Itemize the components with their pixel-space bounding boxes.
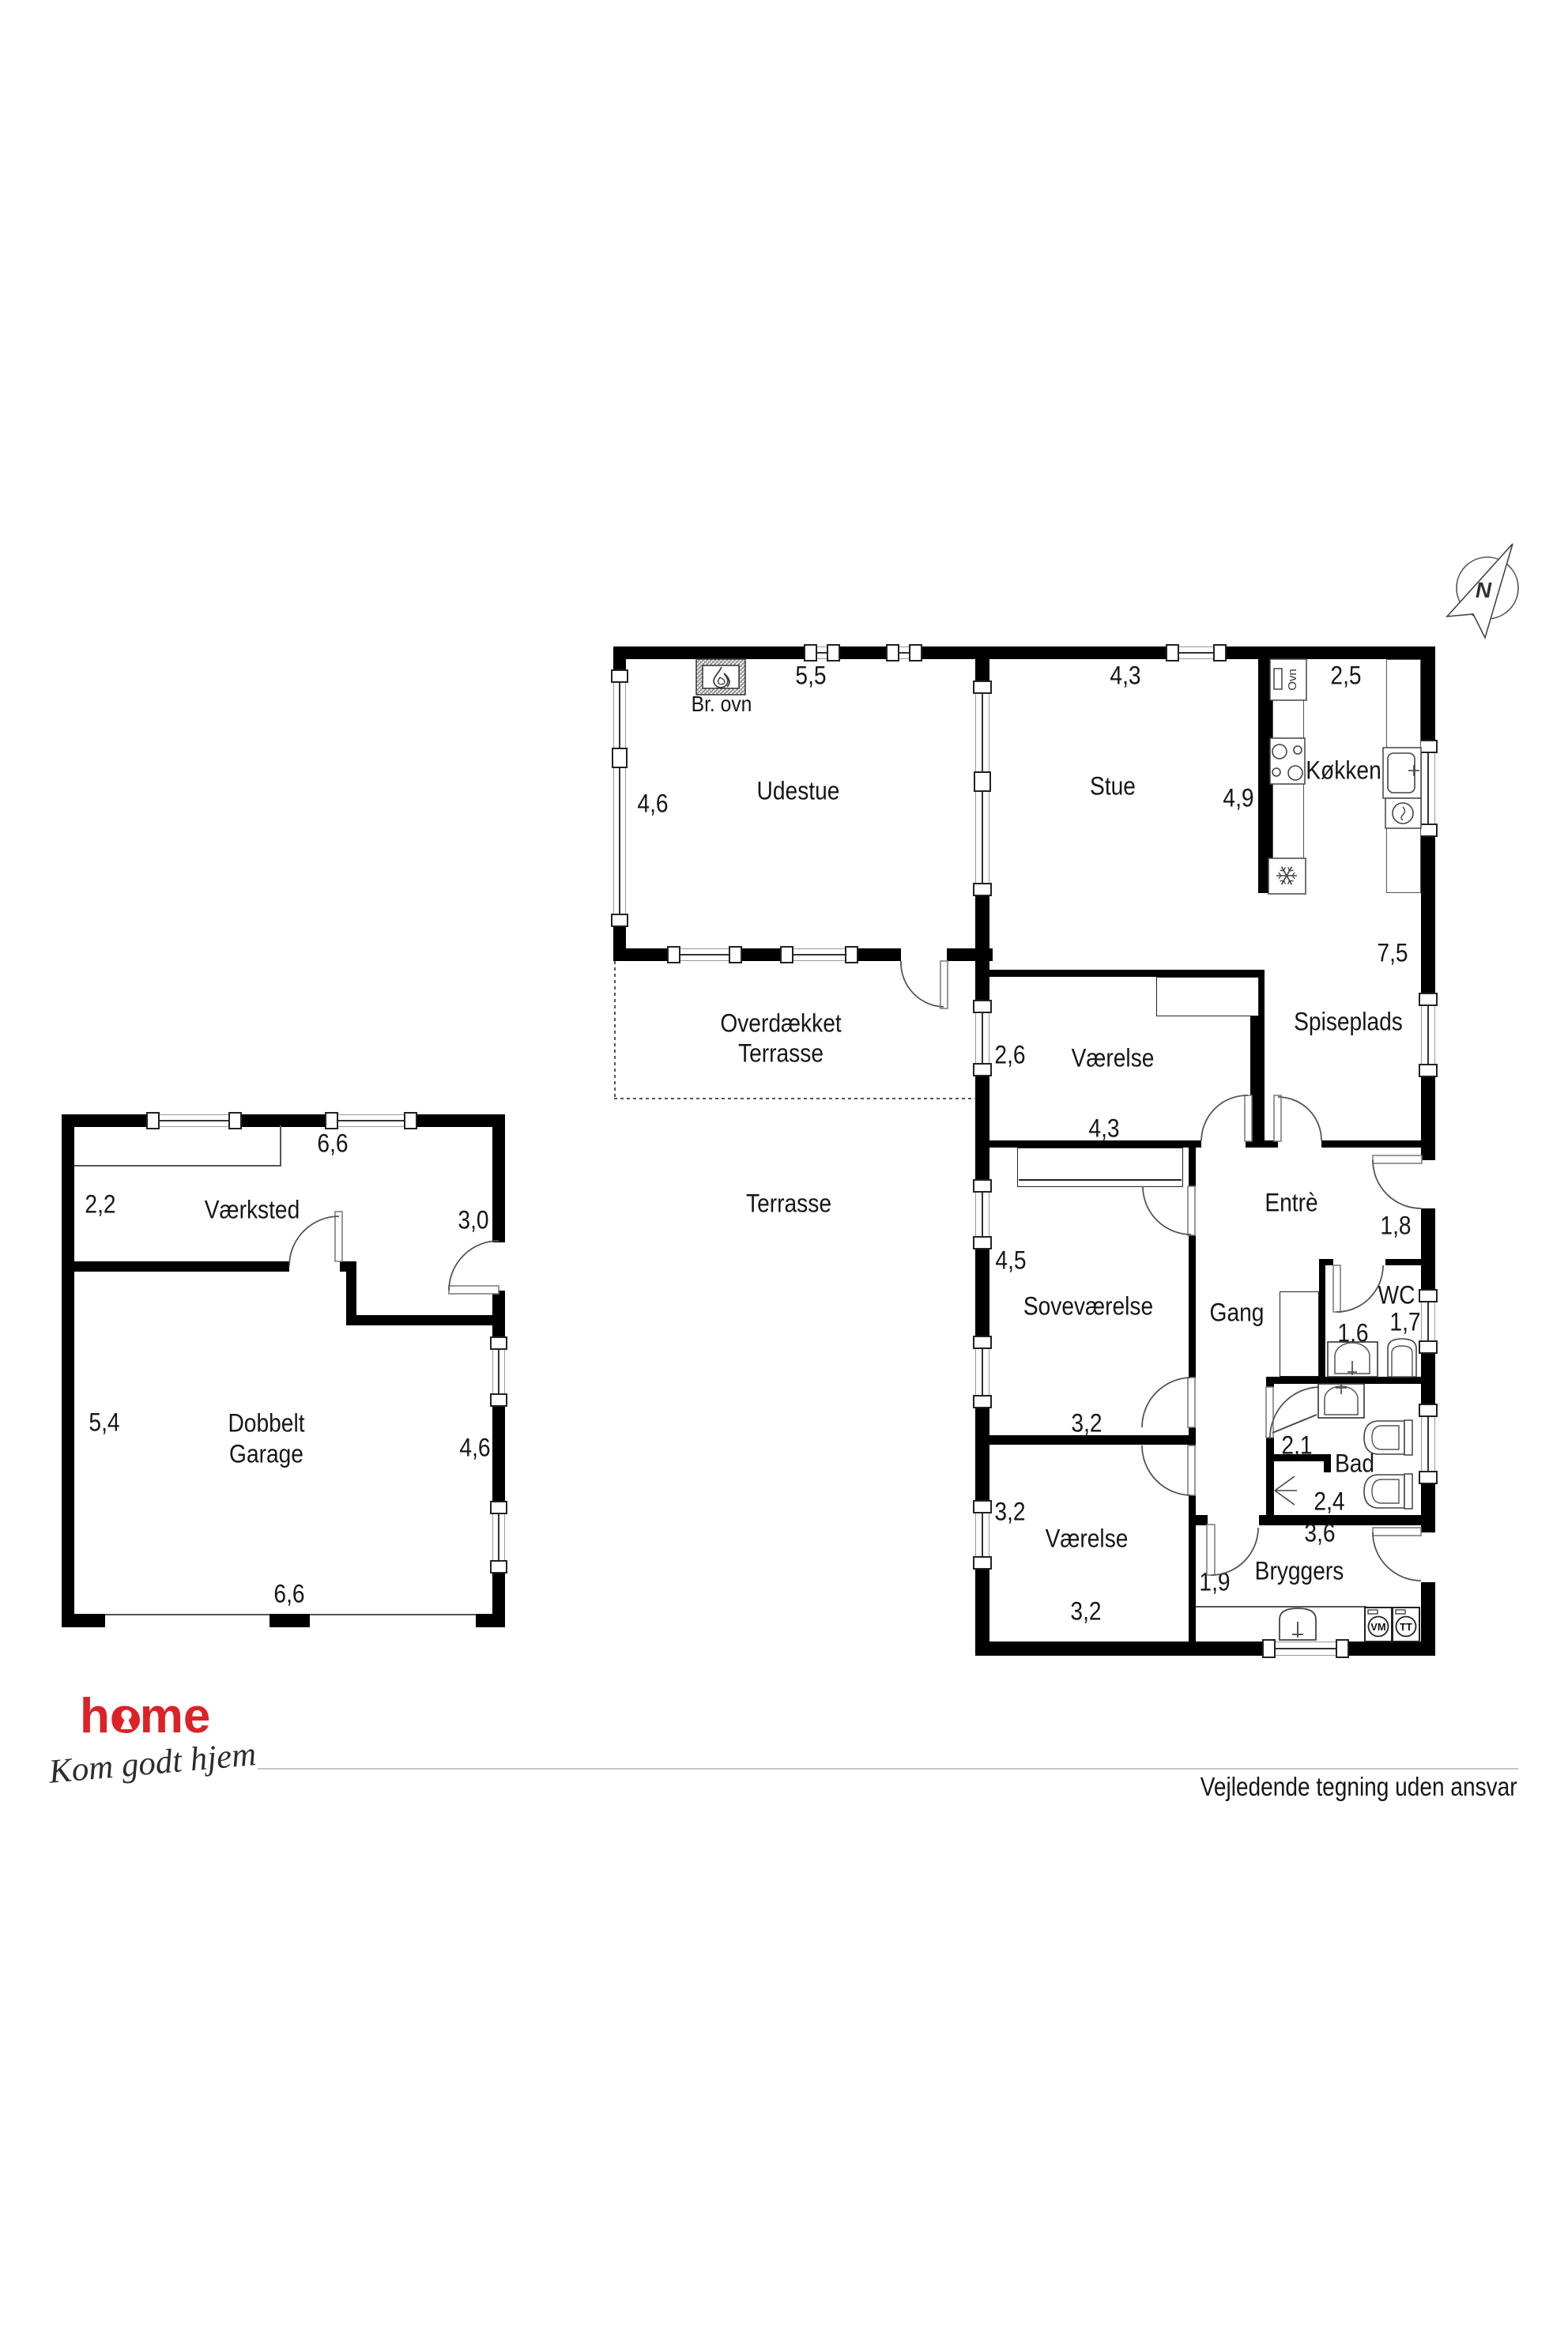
svg-text:VM: VM [1370,1621,1386,1633]
svg-text:Ovn: Ovn [1286,669,1299,691]
svg-text:TT: TT [1400,1621,1412,1633]
svg-text:N: N [1476,578,1492,602]
